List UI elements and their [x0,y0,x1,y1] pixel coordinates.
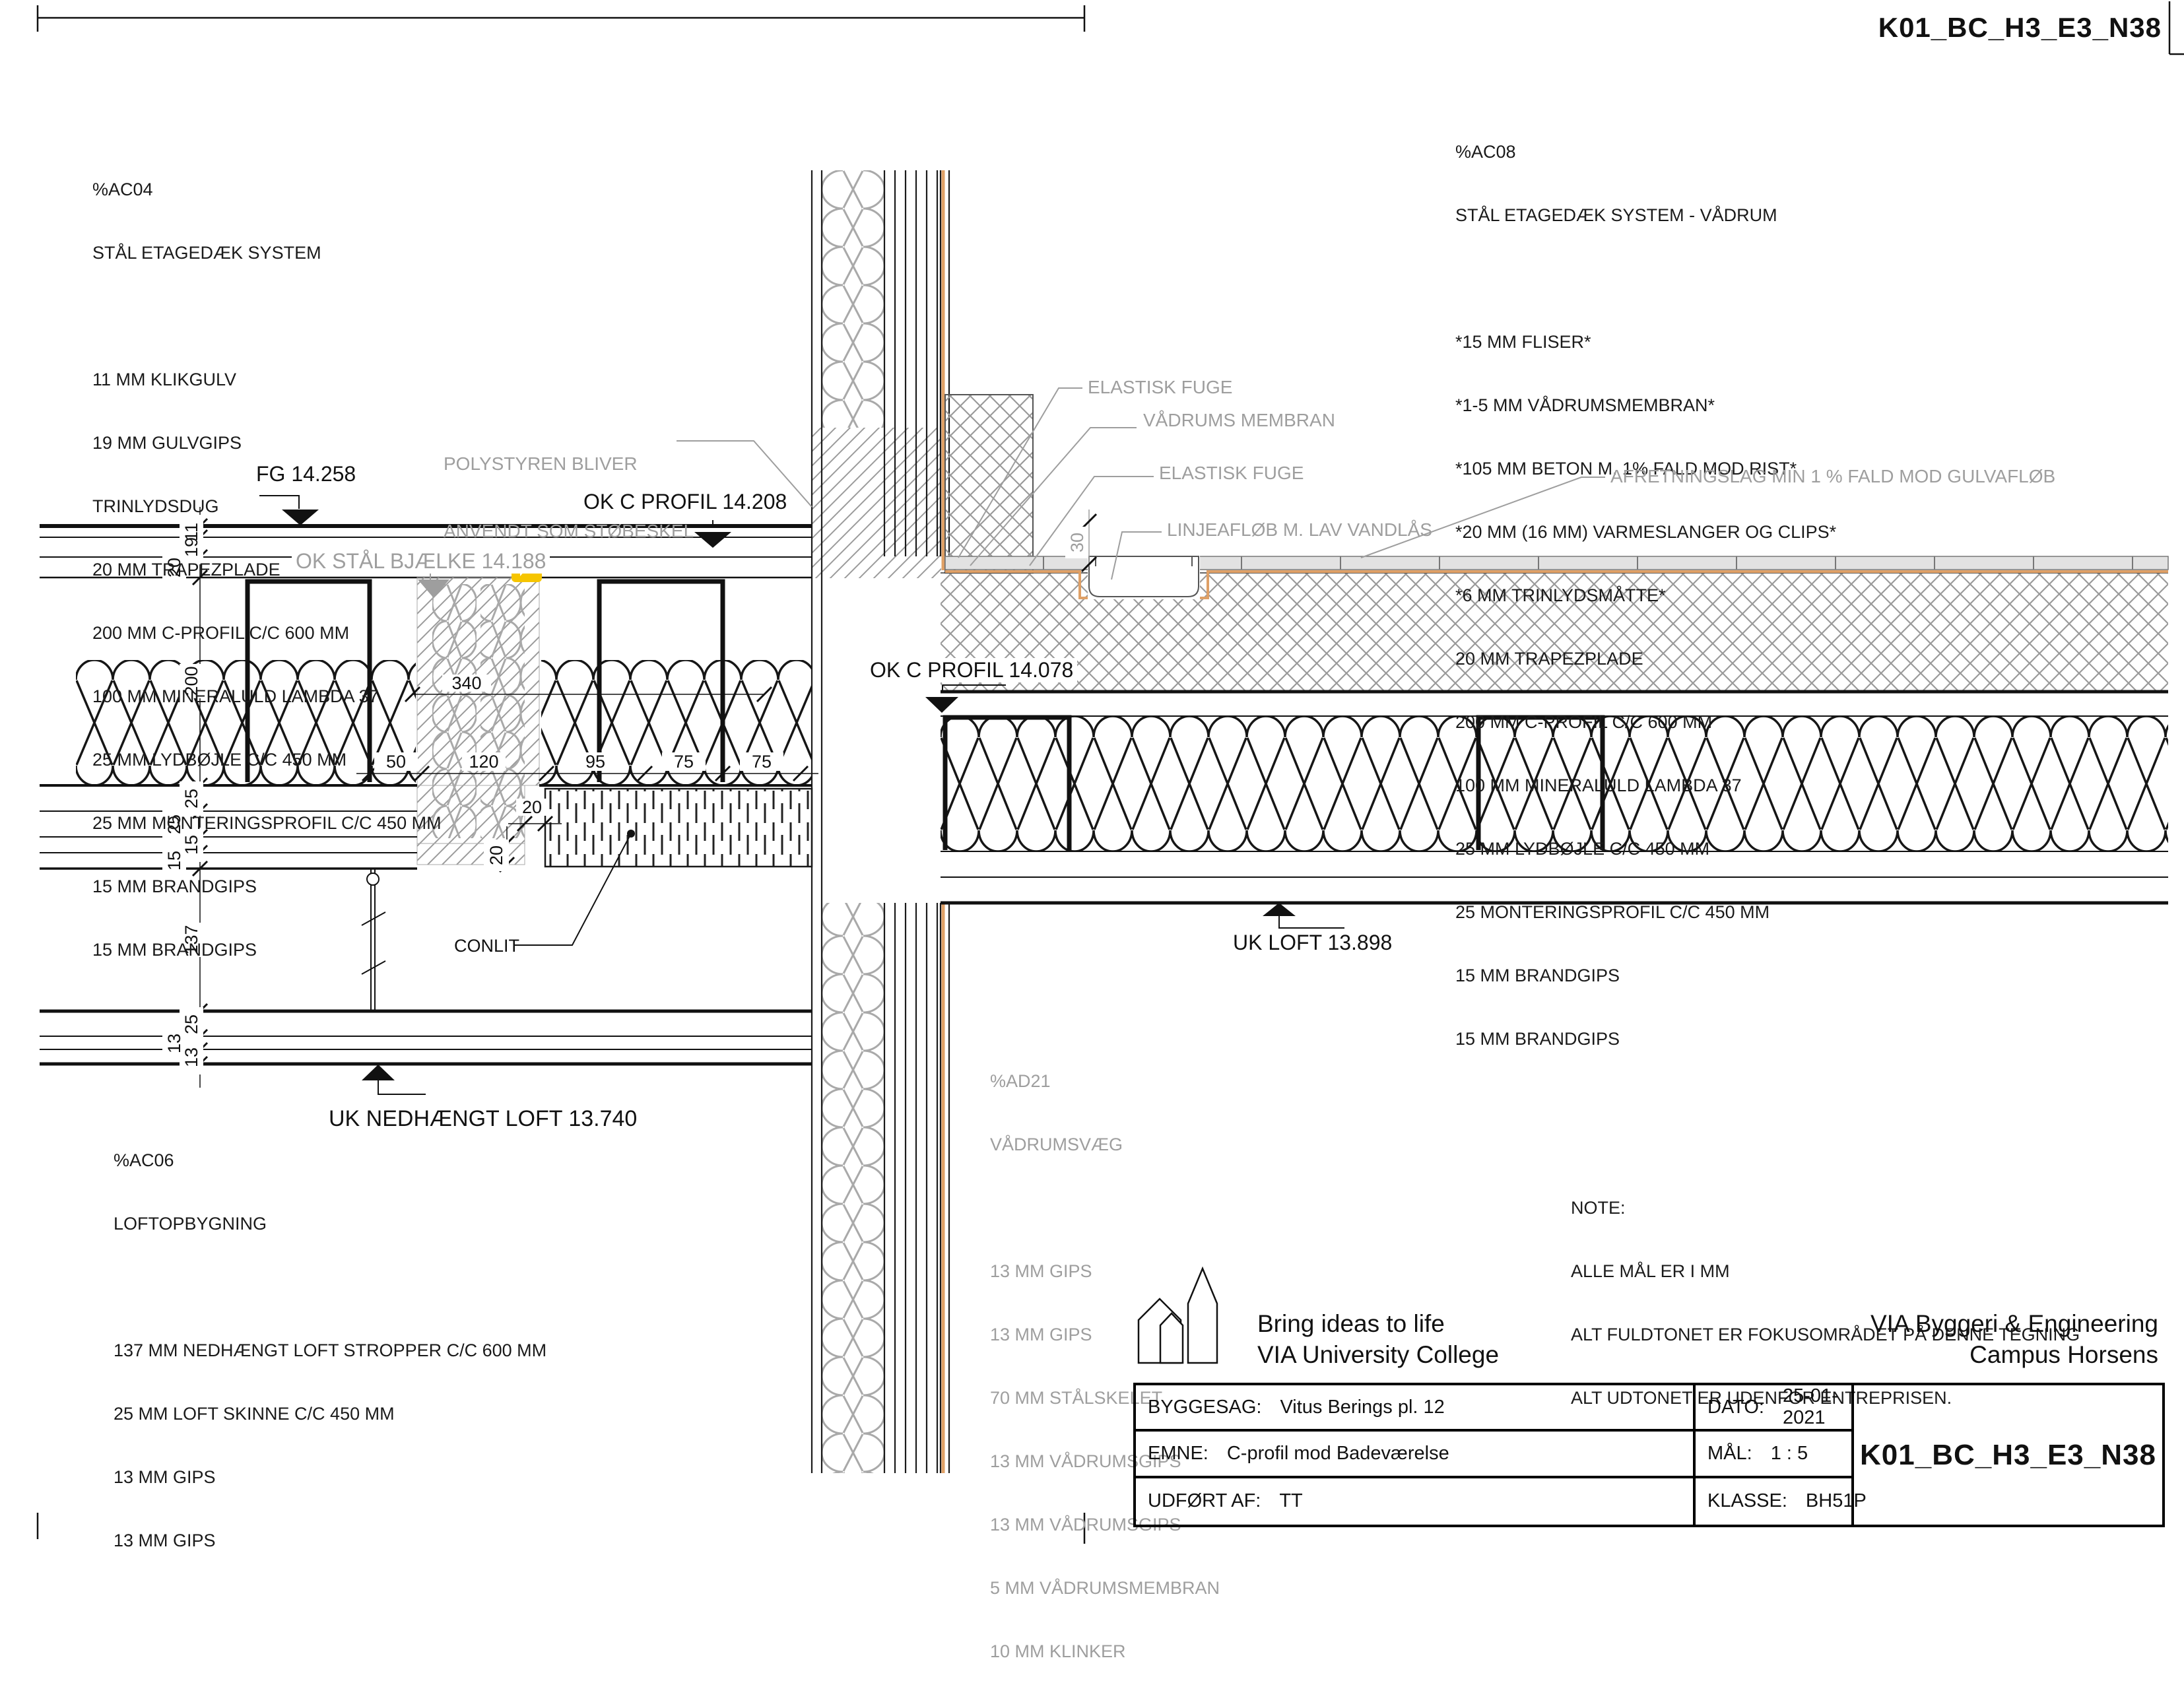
layer-line: 15 MM BRANDGIPS [1455,1028,1836,1049]
annotation-conlit: CONLIT [454,935,519,957]
titleblock-org: VIA Byggeri & Engineering Campus Horsens [1870,1308,2158,1370]
annotation-polystyren: POLYSTYREN BLIVER ANVENDT SOM STØBESKEL [444,408,694,565]
layer-line: 137 MM NEDHÆNGT LOFT STROPPER C/C 600 MM [114,1340,546,1361]
tagline-1: Bring ideas to life [1257,1308,1499,1339]
annotation-elastisk-fuge-2: ELASTISK FUGE [1159,462,1304,484]
dim-h-120: 120 [469,752,498,772]
byggesag-label: BYGGESAG: [1148,1397,1261,1418]
layer-line: *1-5 MM VÅDRUMSMEMBRAN* [1455,395,1836,416]
elastisk-fuge-2-leader [1030,477,1154,566]
titleblock-cell-dato: DATO: 25-01-2021 [1696,1385,1854,1432]
layer-line: *20 MM (16 MM) VARMESLANGER OG CLIPS* [1455,521,1836,543]
dim-h-95: 95 [585,752,605,772]
level-ok-c-profil-top: OK C PROFIL 14.208 [583,490,787,514]
layer-line: 13 MM GIPS [114,1530,546,1551]
annotation-vadrums-membran: VÅDRUMS MEMBRAN [1143,409,1335,432]
uk-nedhaengt-loft-marker-icon [362,1065,395,1080]
dim-v-25c: 25 [182,1014,201,1034]
block-title: VÅDRUMSVÆG [990,1134,1220,1155]
uk-loft-leader [1279,916,1344,928]
layer-line: 25 MM LYDBØJLE C/C 450 MM [92,749,442,770]
layer-block-ad21: %AD21 VÅDRUMSVÆG 13 MM GIPS 13 MM GIPS 7… [990,1028,1220,1683]
org-line-1: VIA Byggeri & Engineering [1870,1308,2158,1339]
klasse-label: KLASSE: [1707,1490,1787,1512]
conlit-leader-dot [627,830,635,838]
dim-h-75a: 75 [674,752,694,772]
layer-block-ac08: %AC08 STÅL ETAGEDÆK SYSTEM - VÅDRUM *15 … [1455,99,1836,1071]
layer-line: 25 MM LYDBØJLE C/C 450 MM [1455,838,1836,859]
layer-line: 25 MM MONTERINGSPROFIL C/C 450 MM [92,812,442,834]
drawing-number-top: K01_BC_H3_E3_N38 [1878,12,2162,44]
block-title: STÅL ETAGEDÆK SYSTEM [92,242,442,263]
dato-value: 25-01-2021 [1783,1385,1851,1429]
linear-drain [1089,556,1199,597]
annotation-line: ANVENDT SOM STØBESKEL [444,520,694,543]
layer-line: 10 MM KLINKER [990,1641,1220,1662]
layer-line: 19 MM GULVGIPS [92,432,442,453]
layer-line: 15 MM BRANDGIPS [92,876,442,897]
layer-block-ac06: %AC06 LOFTOPBYGNING 137 MM NEDHÆNGT LOFT… [114,1107,546,1572]
suspended-ceiling-boards [40,1036,812,1049]
annotation-elastisk-fuge-1: ELASTISK FUGE [1088,376,1232,399]
wall-insulation-lower [822,903,884,1473]
layer-line: 100 MM MINERALULD LAMBDA 37 [1455,775,1836,796]
dato-label: DATO: [1707,1397,1764,1418]
dim-gap-20b: 20 [486,845,506,865]
maal-label: MÅL: [1707,1443,1752,1465]
emne-value: C-profil mod Badeværelse [1227,1443,1449,1465]
layer-line: 13 MM GIPS [990,1261,1220,1282]
annotation-afretningslag: AFRETNINGSLAG MIN 1 % FALD MOD GULVAFLØB [1610,465,2055,488]
byggesag-value: Vitus Berings pl. 12 [1280,1397,1444,1418]
layer-line: 100 MM MINERALULD LAMBDA 37 [92,686,442,707]
titleblock-drawing-number: K01_BC_H3_E3_N38 [1854,1385,2162,1525]
layer-line: 25 MM LOFT SKINNE C/C 450 MM [114,1403,546,1424]
layer-line: *15 MM FLISER* [1455,331,1836,352]
block-title: STÅL ETAGEDÆK SYSTEM - VÅDRUM [1455,205,1836,226]
concrete-upstand [945,395,1033,573]
layer-line: 13 MM GIPS [990,1324,1220,1345]
annotation-linjeafloeb: LINJEAFLØB M. LAV VANDLÅS [1167,519,1432,541]
level-ok-staal-bjaelke: OK STÅL BJÆLKE 14.188 [292,549,550,574]
wall-polystyrene-hatch [812,428,941,578]
block-code: %AD21 [990,1071,1220,1092]
layer-line: 15 MM BRANDGIPS [92,939,442,960]
klasse-value: BH51P [1806,1490,1867,1512]
wall-insulation-upper [822,170,884,428]
level-uk-nedhaengt-loft: UK NEDHÆNGT LOFT 13.740 [329,1106,637,1132]
dim-gap-20a: 20 [522,797,542,817]
org-line-2: Campus Horsens [1870,1339,2158,1370]
udfoert-value: TT [1279,1490,1302,1512]
level-uk-loft: UK LOFT 13.898 [1233,931,1392,955]
udfoert-label: UDFØRT AF: [1148,1490,1261,1512]
level-fg: FG 14.258 [256,462,356,486]
layer-line: 5 MM VÅDRUMSMEMBRAN [990,1577,1220,1599]
block-code: %AC08 [1455,141,1836,162]
uk-loft-marker-icon [1263,903,1296,916]
layer-line: 200 MM C-PROFIL C/C 600 MM [1455,711,1836,733]
dim-beam-340: 340 [451,673,481,693]
dim-drain-30: 30 [1067,533,1087,552]
maal-value: 1 : 5 [1771,1443,1808,1465]
block-title: LOFTOPBYGNING [114,1213,546,1234]
layer-line: 13 MM GIPS [114,1467,546,1488]
uk-nedhaengt-loft-leader [378,1080,426,1094]
layer-line: *6 MM TRINLYDSMÅTTE* [1455,585,1836,606]
block-code: %AC04 [92,179,442,200]
titleblock-cell-byggesag: BYGGESAG: Vitus Berings pl. 12 [1136,1385,1696,1432]
dim-h-75b: 75 [752,752,772,772]
annotation-line: POLYSTYREN BLIVER [444,453,694,475]
ok-c-profil-top-marker-icon [694,532,731,548]
titleblock-cell-udfoert: UDFØRT AF: TT [1136,1478,1696,1525]
note-title: NOTE: [1571,1197,2080,1218]
note-line: ALLE MÅL ER I MM [1571,1261,2080,1282]
titleblock-cell-emne: EMNE: C-profil mod Badeværelse [1136,1432,1696,1478]
tagline-2: VIA University College [1257,1339,1499,1370]
title-block: BYGGESAG: Vitus Berings pl. 12 DATO: 25-… [1133,1383,2165,1527]
layer-line: 15 MM BRANDGIPS [1455,965,1836,986]
layer-line: 25 MONTERINGSPROFIL C/C 450 MM [1455,902,1836,923]
layer-line: 200 MM C-PROFIL C/C 600 MM [92,622,442,643]
layer-line: 11 MM KLIKGULV [92,369,442,390]
titleblock-cell-maal: MÅL: 1 : 5 [1696,1432,1854,1478]
layer-line: 20 MM TRAPEZPLADE [1455,648,1836,669]
conlit-block [545,789,812,867]
ok-c-profil-bad-marker-icon [925,697,958,713]
bathroom-wall [812,170,949,1473]
titleblock-cell-klasse: KLASSE: BH51P [1696,1478,1854,1525]
block-code: %AC06 [114,1150,546,1171]
level-ok-c-profil-bad: OK C PROFIL 14.078 [866,658,1077,682]
emne-label: EMNE: [1148,1443,1208,1465]
titleblock-taglines: Bring ideas to life VIA University Colle… [1257,1308,1499,1370]
layer-line: TRINLYDSDUG [92,496,442,517]
dim-v-13b: 13 [182,1047,201,1067]
